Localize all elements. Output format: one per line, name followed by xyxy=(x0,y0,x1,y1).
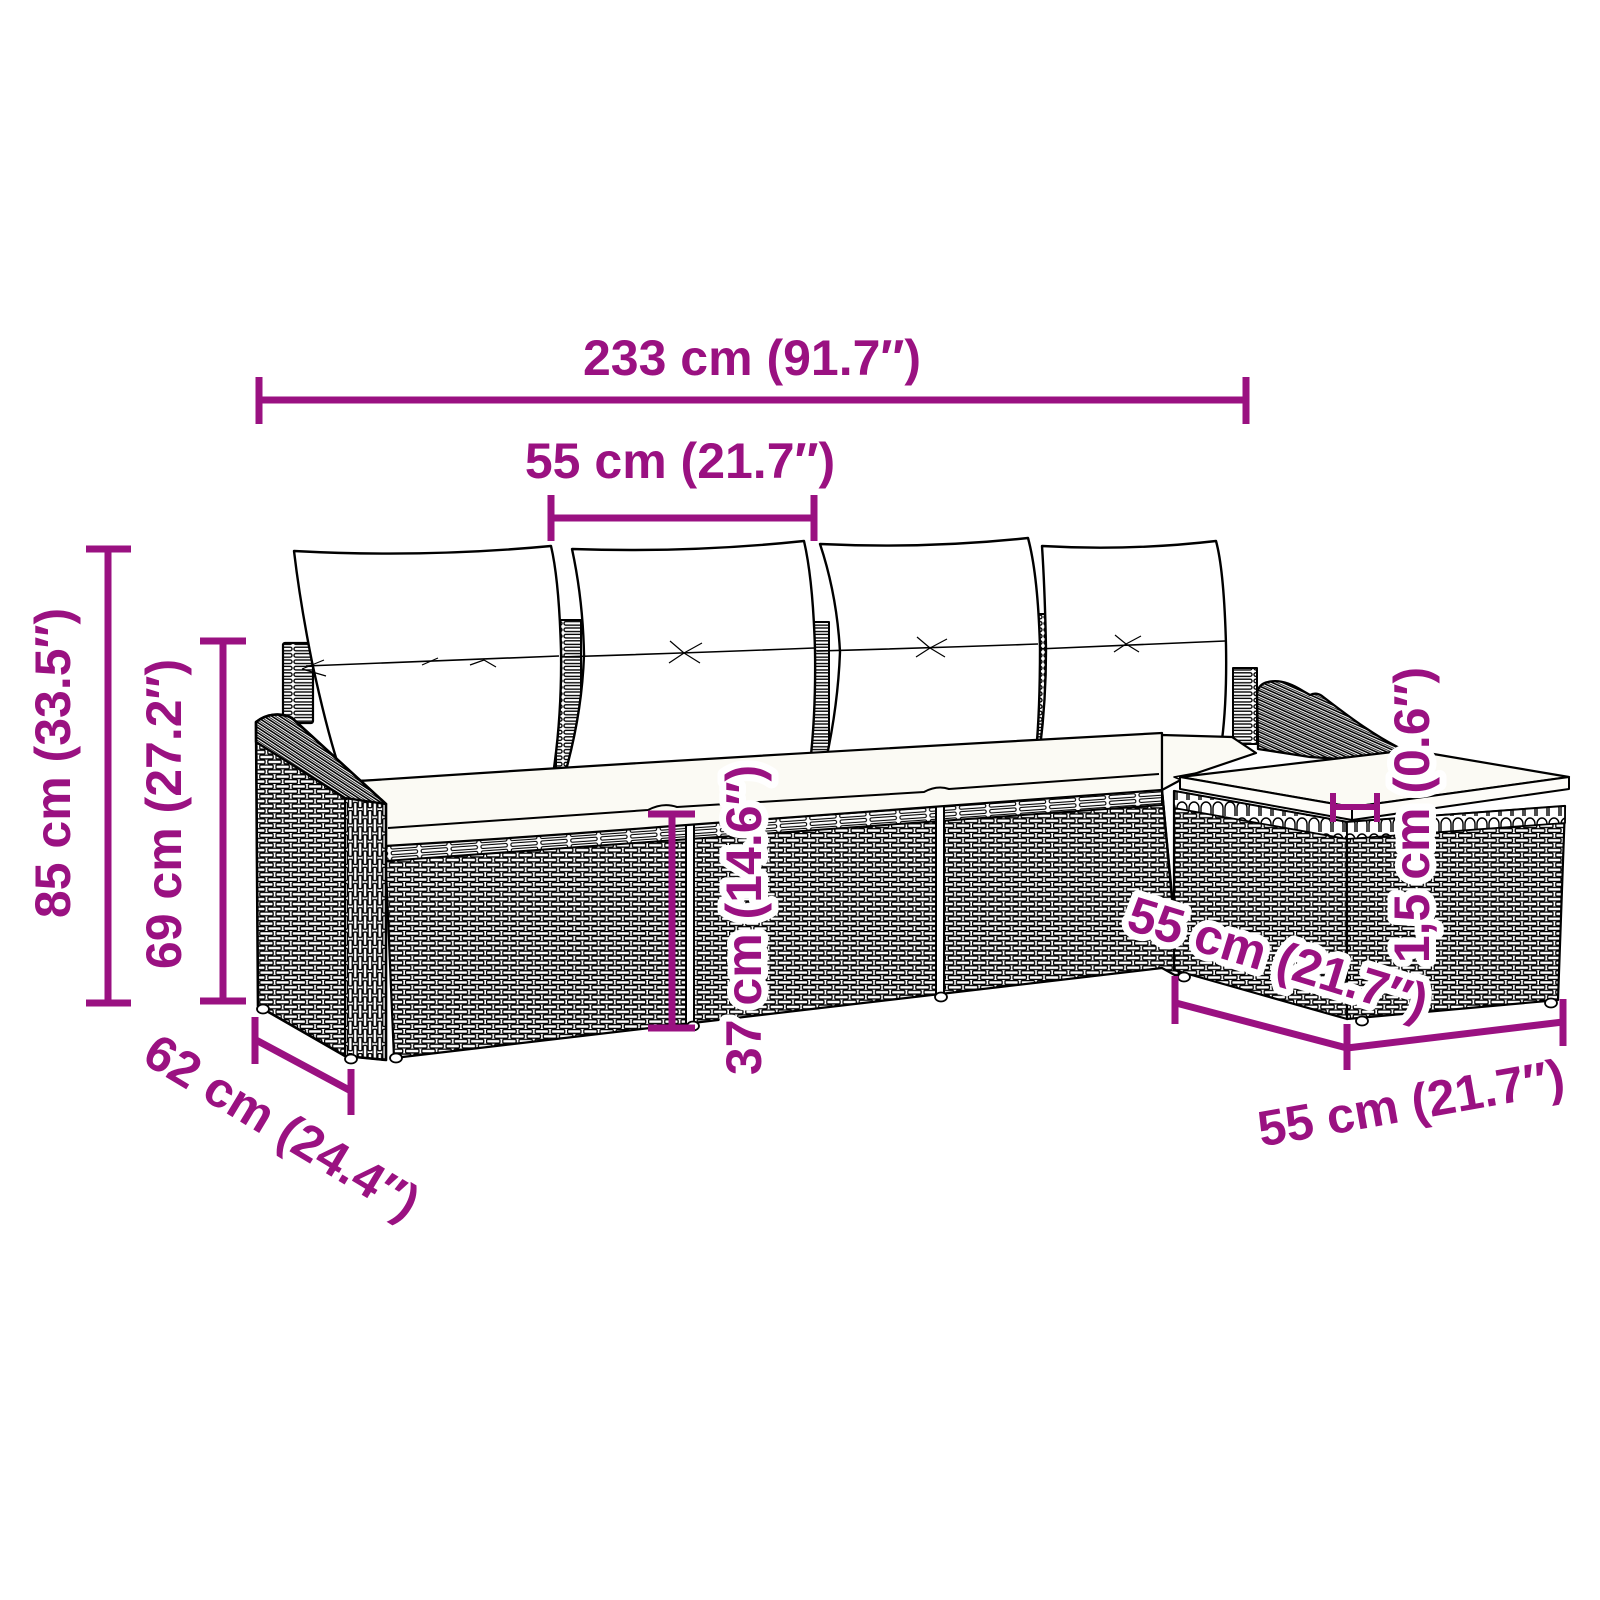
svg-text:1,5 cm (0.6″): 1,5 cm (0.6″) xyxy=(1384,667,1440,963)
svg-text:69 cm (27.2″): 69 cm (27.2″) xyxy=(136,659,192,969)
svg-text:37 cm (14.6″): 37 cm (14.6″) xyxy=(716,765,772,1075)
svg-text:85 cm (33.5″): 85 cm (33.5″) xyxy=(25,608,81,918)
svg-text:233 cm (91.7″): 233 cm (91.7″) xyxy=(583,330,921,386)
svg-text:55 cm (21.7″): 55 cm (21.7″) xyxy=(525,433,835,489)
